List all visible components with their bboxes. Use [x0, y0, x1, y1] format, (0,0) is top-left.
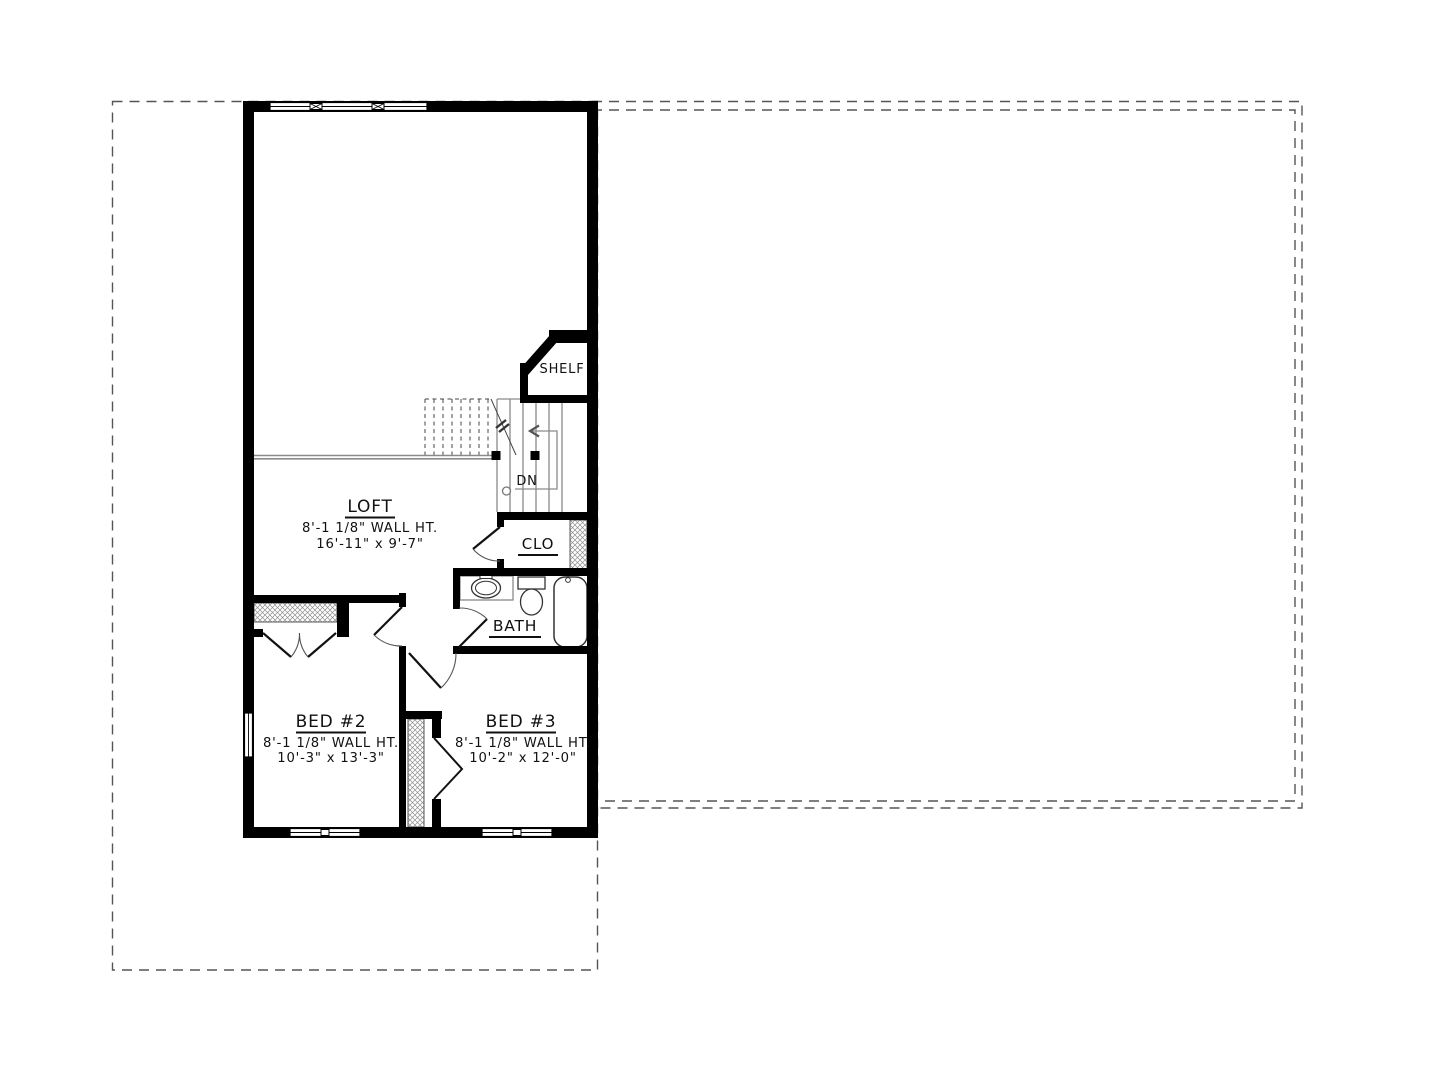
- lower-level-dashed-outlines: [113, 102, 1303, 971]
- loft-label-group: LOFT 8'-1 1/8" WALL HT. 16'-11" x 9'-7": [302, 497, 438, 552]
- clo-west-wall-upper: [497, 512, 504, 527]
- railing-post: [531, 451, 540, 460]
- bed2-entry-door: [374, 607, 402, 646]
- clo-door: [473, 527, 500, 561]
- loft-name: LOFT: [347, 497, 392, 517]
- dashed-outline-right-inner: [592, 110, 1295, 801]
- window-top-loft: [270, 103, 427, 111]
- stair-south-wall: [497, 512, 598, 520]
- stair-newel-circle: [503, 487, 511, 495]
- bed2-closet-south-stub: [252, 629, 263, 637]
- closet-hatching: [254, 520, 587, 827]
- bed3-name: BED #3: [486, 712, 557, 732]
- bed3-closet-east-stub-upper: [432, 719, 441, 738]
- loft-size: 16'-11" x 9'-7": [316, 537, 423, 552]
- bath-label-group: BATH: [489, 617, 541, 637]
- toilet-bowl: [521, 589, 543, 615]
- bed2-name: BED #2: [296, 712, 367, 732]
- sink-basin: [476, 581, 497, 595]
- clo-label-group: CLO: [518, 535, 558, 555]
- bed2-bed3-dividing-wall: [399, 646, 406, 838]
- bed3-wall-height: 8'-1 1/8" WALL HT.: [455, 736, 591, 751]
- bed3-entry-door: [409, 653, 456, 688]
- bath-south-wall: [453, 646, 598, 654]
- exterior-wall-right: [587, 101, 598, 838]
- clo-name: CLO: [522, 535, 555, 553]
- floor-plan-sheet: DN: [0, 0, 1445, 1074]
- bed2-closet-east-wall: [337, 603, 349, 637]
- loft-railing: [254, 451, 540, 460]
- window-bottom-bed3: [482, 829, 552, 837]
- loft-wall-height: 8'-1 1/8" WALL HT.: [302, 521, 438, 536]
- dashed-outline-right-outer: [592, 102, 1302, 809]
- bed2-closet-double-doors: [263, 633, 336, 657]
- bath-door: [459, 608, 487, 647]
- shelf-nook-bottom-wall: [520, 395, 598, 403]
- stair-break-line: [491, 399, 516, 455]
- bathtub: [554, 577, 587, 647]
- bed2-wall-height: 8'-1 1/8" WALL HT.: [263, 736, 399, 751]
- stairs-down-label: DN: [516, 474, 537, 489]
- bath-north-wall: [453, 568, 598, 576]
- bed3-closet-north-wall: [406, 711, 442, 719]
- toilet-tank: [518, 577, 545, 589]
- bed3-closet-shelf-hatch: [408, 719, 424, 827]
- window-left-bed2: [245, 713, 253, 757]
- bed3-size: 10'-2" x 12'-0": [469, 751, 576, 766]
- bed2-label-group: BED #2 8'-1 1/8" WALL HT. 10'-3" x 13'-3…: [263, 712, 399, 766]
- window-bottom-bed2: [290, 829, 360, 837]
- railing-post: [492, 451, 501, 460]
- bed3-label-group: BED #3 8'-1 1/8" WALL HT. 10'-2" x 12'-0…: [455, 712, 591, 766]
- bath-name: BATH: [493, 617, 537, 635]
- bath-fixtures: [460, 572, 587, 647]
- shelf-label: SHELF: [540, 362, 585, 377]
- tub-faucet: [566, 578, 571, 583]
- floor-plan-drawing: DN: [0, 0, 1445, 1074]
- room-labels: LOFT 8'-1 1/8" WALL HT. 16'-11" x 9'-7" …: [263, 362, 591, 766]
- bed2-north-wall: [252, 595, 406, 603]
- bed2-size: 10'-3" x 13'-3": [277, 751, 384, 766]
- bed3-closet-east-stub-lower: [432, 799, 441, 827]
- bath-west-wall: [453, 568, 460, 609]
- bed2-closet-shelf-hatch: [254, 603, 337, 622]
- clo-shelf-hatch: [570, 520, 587, 569]
- open-to-below-dashed-treads: [425, 399, 492, 455]
